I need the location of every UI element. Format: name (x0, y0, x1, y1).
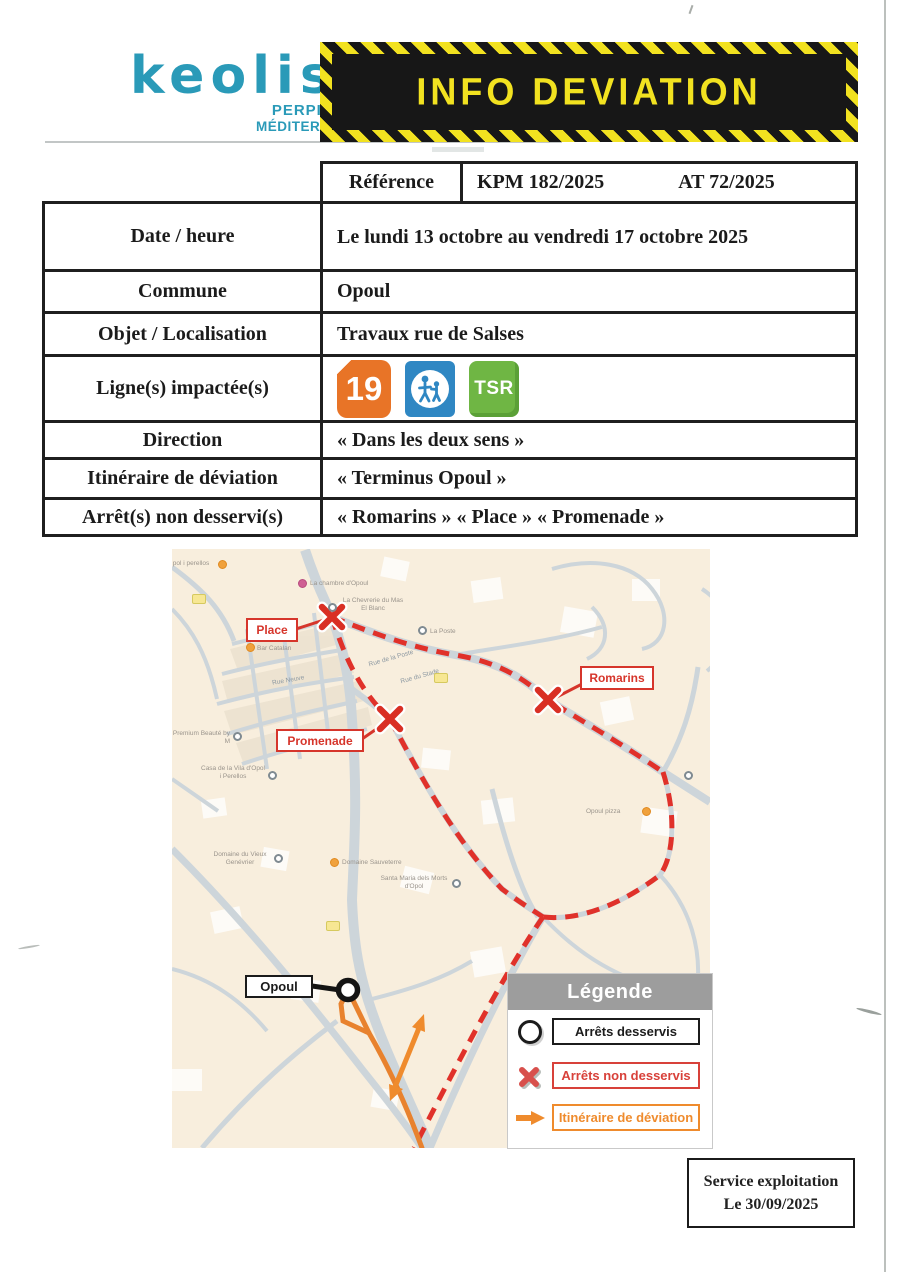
hazard-stripe-banner: INFO DEVIATION (320, 42, 858, 142)
poi-bar-catalan: Bar Catalan (257, 645, 291, 653)
stop-label-place: Place (246, 618, 298, 642)
school-children-icon (405, 361, 455, 417)
poi-icon (218, 560, 227, 569)
legend-item-deviation: Itinéraire de déviation (508, 1104, 712, 1131)
objet-label: Objet / Localisation (44, 313, 322, 356)
scan-edge-line (884, 0, 886, 1272)
scan-mark (856, 1007, 882, 1016)
table-row-itineraire: Itinéraire de déviation « Terminus Opoul… (44, 459, 857, 499)
banner-title: INFO DEVIATION (416, 70, 761, 114)
logo-underline-fragment (432, 147, 484, 152)
commune-value: Opoul (322, 271, 857, 313)
closed-stop-icon (508, 1063, 552, 1089)
poi-la-poste: La Poste (430, 628, 456, 636)
lignes-value: 19 (322, 356, 857, 422)
poi-icon (684, 771, 693, 780)
poi-casa-vila: Casa de la Vila d'Opol i Perellos (200, 765, 266, 781)
direction-label: Direction (44, 422, 322, 459)
line-badges: 19 (337, 360, 849, 418)
commune-label: Commune (44, 271, 322, 313)
poi-santa-maria: Santa Maria dels Morts d'Opol (380, 875, 448, 891)
stop-label-promenade: Promenade (276, 729, 364, 752)
map-legend: Légende Arrêts desservis Arrêts non dess… (507, 973, 713, 1149)
poi-icon (330, 858, 339, 867)
footer-line2: Le 30/09/2025 (724, 1193, 819, 1216)
legend-label-deviation: Itinéraire de déviation (552, 1104, 700, 1131)
poi-chevrerie: La Chevrerie du Mas El Blanc (340, 597, 406, 613)
line-19-badge: 19 (337, 360, 391, 418)
table-row-commune: Commune Opoul (44, 271, 857, 313)
itineraire-label: Itinéraire de déviation (44, 459, 322, 499)
poi-chambre-opoul: La chambre d'Opoul (310, 580, 368, 588)
objet-value: Travaux rue de Salses (322, 313, 857, 356)
stop-label-opoul: Opoul (245, 975, 313, 998)
poi-icon (642, 807, 651, 816)
table-row-lignes: Ligne(s) impactée(s) 19 (44, 356, 857, 422)
poi-opoul-pizza: Opoul pizza (586, 808, 620, 816)
stop-label-romarins: Romarins (580, 666, 654, 690)
road-shield-icon (434, 673, 448, 683)
legend-item-not-served: Arrêts non desservis (508, 1062, 712, 1089)
reference-at: AT 72/2025 (678, 171, 775, 193)
date-value: Le lundi 13 octobre au vendredi 17 octob… (322, 203, 857, 271)
poi-domaine-genevrier: Domaine du Vieux Genévrier (208, 851, 272, 867)
poi-icon (452, 879, 461, 888)
road-shield-icon (326, 921, 340, 931)
school-line-badge (405, 361, 455, 417)
table-row-reference: Référence KPM 182/2025AT 72/2025 (44, 163, 857, 203)
poi-icon (418, 626, 427, 635)
poi-icon (298, 579, 307, 588)
poi-icon (268, 771, 277, 780)
deviation-route-orange (341, 990, 422, 1148)
poi-icon (246, 643, 255, 652)
poi-icon (274, 854, 283, 863)
scan-mark (689, 5, 694, 14)
table-row-date: Date / heure Le lundi 13 octobre au vend… (44, 203, 857, 271)
poi-premium-beaute: Premium Beauté by M (172, 730, 230, 746)
date-label: Date / heure (44, 203, 322, 271)
banner-inner: INFO DEVIATION (332, 54, 846, 130)
served-stop-icon (508, 1020, 552, 1044)
arrets-label: Arrêt(s) non desservi(s) (44, 499, 322, 536)
footer-line1: Service exploitation (704, 1170, 839, 1193)
road-shield-icon (192, 594, 206, 604)
table-spacer-cell (44, 163, 322, 203)
deviation-notice-page: keolis PERPIGNAN MÉDITERRANÉE INFO DEVIA… (0, 0, 899, 1272)
reference-value: KPM 182/2025AT 72/2025 (462, 163, 857, 203)
reference-label: Référence (322, 163, 462, 203)
service-exploitation-box: Service exploitation Le 30/09/2025 (687, 1158, 855, 1228)
poi-icon (233, 732, 242, 741)
lignes-label: Ligne(s) impactée(s) (44, 356, 322, 422)
deviation-arrow-icon (508, 1110, 552, 1126)
line-tsr-badge: TSR (469, 361, 519, 417)
legend-item-served: Arrêts desservis (508, 1018, 712, 1045)
reference-kpm: KPM 182/2025 (477, 171, 604, 193)
legend-label-served: Arrêts desservis (552, 1018, 700, 1045)
table-row-arrets: Arrêt(s) non desservi(s) « Romarins » « … (44, 499, 857, 536)
table-row-objet: Objet / Localisation Travaux rue de Sals… (44, 313, 857, 356)
itineraire-value: « Terminus Opoul » (322, 459, 857, 499)
deviation-info-table: Référence KPM 182/2025AT 72/2025 Date / … (42, 161, 858, 537)
legend-title: Légende (508, 974, 712, 1010)
served-stop-marker (339, 981, 358, 1000)
poi-perellos: pol i perellos (172, 560, 216, 568)
arrets-value: « Romarins » « Place » « Promenade » (322, 499, 857, 536)
poi-domaine-sauveterre: Domaine Sauveterre (342, 859, 402, 867)
direction-value: « Dans les deux sens » (322, 422, 857, 459)
scan-mark (18, 944, 40, 950)
legend-label-not-served: Arrêts non desservis (552, 1062, 700, 1089)
poi-icon (328, 603, 337, 612)
table-row-direction: Direction « Dans les deux sens » (44, 422, 857, 459)
